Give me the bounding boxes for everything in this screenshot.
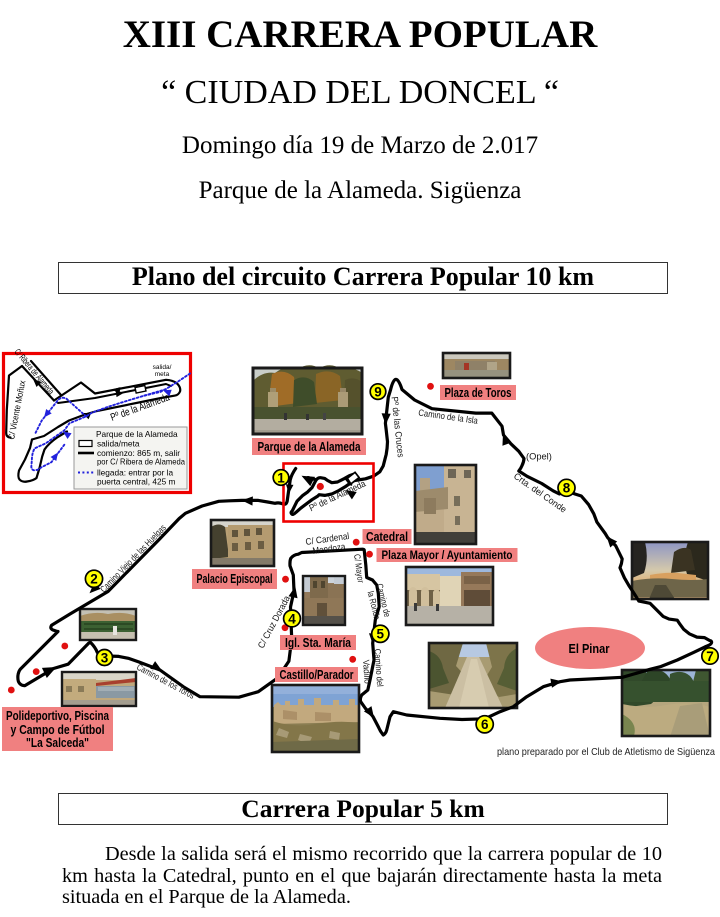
svg-text:Plaza Mayor / Ayuntamiento: Plaza Mayor / Ayuntamiento <box>382 548 513 562</box>
svg-text:y Campo de Fútbol: y Campo de Fútbol <box>11 723 105 737</box>
svg-text:Camino Viejo de las Huelgas: Camino Viejo de las Huelgas <box>98 523 168 595</box>
svg-text:6: 6 <box>481 717 489 732</box>
svg-text:9: 9 <box>374 384 382 399</box>
svg-text:Parque de la Alameda: Parque de la Alameda <box>96 429 178 439</box>
svg-text:1: 1 <box>277 470 285 485</box>
svg-text:El Pinar: El Pinar <box>569 641 610 656</box>
svg-text:7: 7 <box>706 649 714 664</box>
svg-text:(Opel): (Opel) <box>526 452 552 462</box>
svg-text:Castillo/Parador: Castillo/Parador <box>280 668 354 682</box>
svg-text:Pº de las Cruces: Pº de las Cruces <box>390 396 406 458</box>
svg-text:8: 8 <box>563 481 571 496</box>
svg-text:Igl. Sta. María: Igl. Sta. María <box>285 636 352 650</box>
svg-text:Camino del: Camino del <box>373 648 386 687</box>
svg-text:3: 3 <box>101 650 109 665</box>
svg-text:"La Salceda": "La Salceda" <box>26 736 89 750</box>
svg-text:por C/ Ribera de Alameda: por C/ Ribera de Alameda <box>97 457 185 467</box>
svg-text:Parque de la Alameda: Parque de la Alameda <box>258 440 362 454</box>
svg-text:Polideportivo, Piscina: Polideportivo, Piscina <box>6 709 110 723</box>
svg-text:meta: meta <box>155 371 170 378</box>
svg-text:Catedral: Catedral <box>366 530 408 544</box>
svg-text:Palacio Episcopal: Palacio Episcopal <box>197 572 273 586</box>
svg-text:Vadillo: Vadillo <box>361 659 373 684</box>
svg-text:plano preparado por el Club de: plano preparado por el Club de Atletismo… <box>497 747 715 758</box>
svg-text:Plaza de Toros: Plaza de Toros <box>445 386 512 400</box>
svg-text:puerta central, 425 m: puerta central, 425 m <box>97 477 175 487</box>
svg-text:salida/meta: salida/meta <box>97 439 140 449</box>
svg-text:Camino de los Toros: Camino de los Toros <box>135 662 196 701</box>
svg-text:4: 4 <box>288 611 296 626</box>
svg-text:salida/: salida/ <box>153 364 172 371</box>
svg-text:2: 2 <box>90 572 98 587</box>
svg-text:5: 5 <box>377 627 385 642</box>
